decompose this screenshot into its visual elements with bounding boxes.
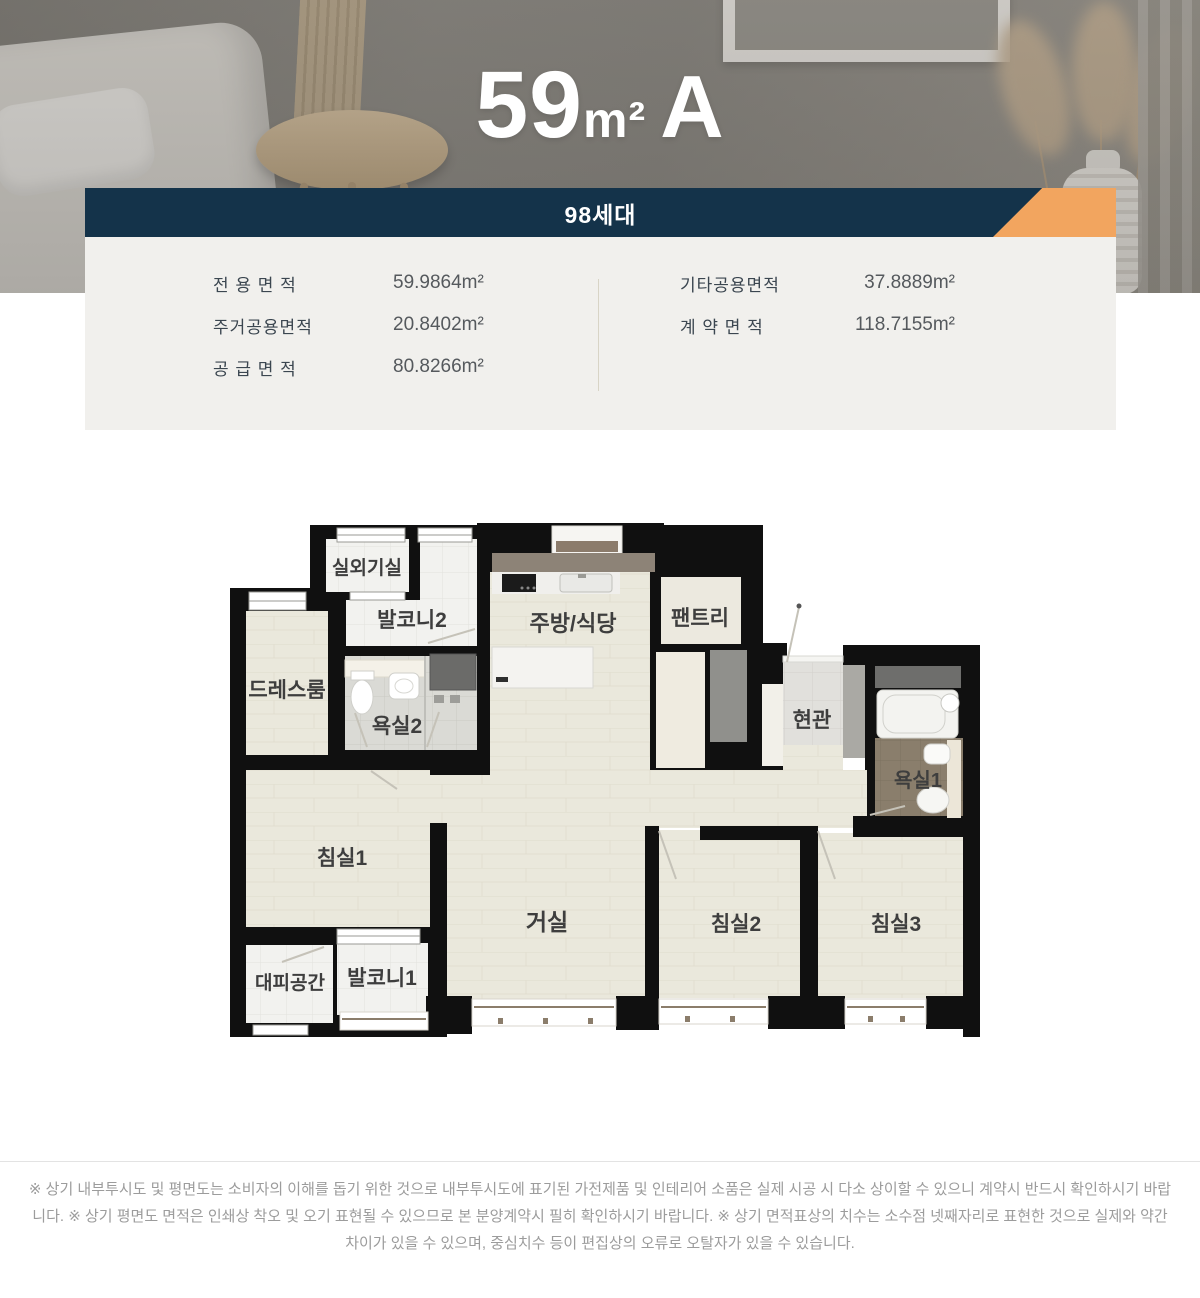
area-label: 주거공용면적 bbox=[213, 313, 330, 338]
room-label-living: 거실 bbox=[526, 909, 568, 935]
room-label-outdoor-unit: 실외기실 bbox=[332, 557, 402, 579]
fridge-space bbox=[710, 650, 747, 742]
entry-threshold bbox=[783, 656, 843, 662]
upper-cabinets bbox=[492, 553, 655, 572]
hall-cabinet bbox=[762, 684, 783, 766]
disclaimer-text: ※ 상기 내부투시도 및 평면도는 소비자의 이해를 돕기 위한 것으로 내부투… bbox=[0, 1162, 1200, 1257]
area-row-other-common: 기타공용면적 37.8889m² bbox=[680, 262, 955, 304]
room-label-bedroom2: 침실2 bbox=[711, 913, 761, 936]
sink bbox=[389, 673, 419, 699]
shower-fitting bbox=[434, 695, 444, 703]
entry-hall-floor bbox=[783, 745, 843, 772]
unit-type-title: 59m²A bbox=[0, 56, 1200, 158]
room-label-bathroom1: 욕실1 bbox=[894, 769, 942, 792]
unit-size-unit: m² bbox=[583, 92, 646, 148]
area-label: 공 급 면 적 bbox=[213, 355, 330, 380]
area-value: 20.8402m² bbox=[393, 314, 563, 336]
households-count: 98세대 bbox=[565, 196, 637, 230]
bath1-shelf bbox=[875, 666, 961, 688]
room-label-balcony1: 발코니1 bbox=[347, 967, 417, 990]
toilet bbox=[924, 744, 950, 764]
room-label-entrance: 현관 bbox=[793, 709, 832, 732]
room-label-bathroom2: 욕실2 bbox=[372, 715, 422, 738]
living-floor bbox=[430, 775, 650, 1000]
toilet-tank bbox=[351, 671, 374, 680]
toilet bbox=[351, 680, 373, 714]
households-banner: 98세대 bbox=[85, 188, 1116, 237]
entrance-floor bbox=[783, 660, 843, 745]
room-label-kitchen: 주방/식당 bbox=[529, 611, 616, 636]
unit-variant: A bbox=[660, 57, 725, 156]
area-row-residential-common: 주거공용면적 20.8402m² bbox=[213, 304, 563, 346]
room-label-dressroom: 드레스룸 bbox=[248, 679, 325, 702]
stove bbox=[502, 574, 536, 592]
area-value: 118.7155m² bbox=[805, 314, 955, 336]
shoe-cabinet bbox=[843, 665, 865, 758]
panel-divider bbox=[598, 279, 599, 391]
area-label: 전 용 면 적 bbox=[213, 271, 330, 296]
hall-floor bbox=[650, 770, 867, 828]
banner-accent-shape bbox=[993, 188, 1116, 237]
area-row-contract: 계 약 면 적 118.7155m² bbox=[680, 304, 955, 346]
area-column-right: 기타공용면적 37.8889m² 계 약 면 적 118.7155m² bbox=[680, 262, 955, 346]
room-label-bedroom1: 침실1 bbox=[317, 847, 368, 870]
shower-fitting bbox=[450, 695, 460, 703]
room-label-bedroom3: 침실3 bbox=[871, 913, 921, 936]
room-label-shelter: 대피공간 bbox=[255, 972, 325, 994]
area-value: 80.8266m² bbox=[393, 356, 563, 378]
tall-cabinet bbox=[656, 652, 705, 768]
room-label-pantry: 팬트리 bbox=[671, 607, 729, 630]
floorplan: 실외기실 발코니2 주방/식당 팬트리 드레스룸 욕실2 현관 욕실1 침실1 … bbox=[228, 523, 982, 1040]
floorplan-svg: 실외기실 발코니2 주방/식당 팬트리 드레스룸 욕실2 현관 욕실1 침실1 … bbox=[228, 523, 982, 1040]
basin bbox=[941, 694, 959, 712]
room-label-balcony2: 발코니2 bbox=[377, 609, 447, 632]
page: 59m²A 98세대 전 용 면 적 59.9864m² 주거공용면적 20.8… bbox=[0, 0, 1200, 1298]
area-column-left: 전 용 면 적 59.9864m² 주거공용면적 20.8402m² 공 급 면… bbox=[213, 262, 563, 388]
area-value: 59.9864m² bbox=[393, 272, 563, 294]
area-label: 기타공용면적 bbox=[680, 271, 797, 296]
area-value: 37.8889m² bbox=[805, 272, 955, 294]
footer-disclaimer: ※ 상기 내부투시도 및 평면도는 소비자의 이해를 돕기 위한 것으로 내부투… bbox=[0, 1161, 1200, 1298]
area-row-supply: 공 급 면 적 80.8266m² bbox=[213, 346, 563, 388]
area-row-exclusive: 전 용 면 적 59.9864m² bbox=[213, 262, 563, 304]
unit-size: 59 bbox=[475, 52, 583, 158]
area-label: 계 약 면 적 bbox=[680, 313, 797, 338]
washer bbox=[430, 654, 476, 690]
area-info-panel: 전 용 면 적 59.9864m² 주거공용면적 20.8402m² 공 급 면… bbox=[85, 237, 1116, 430]
